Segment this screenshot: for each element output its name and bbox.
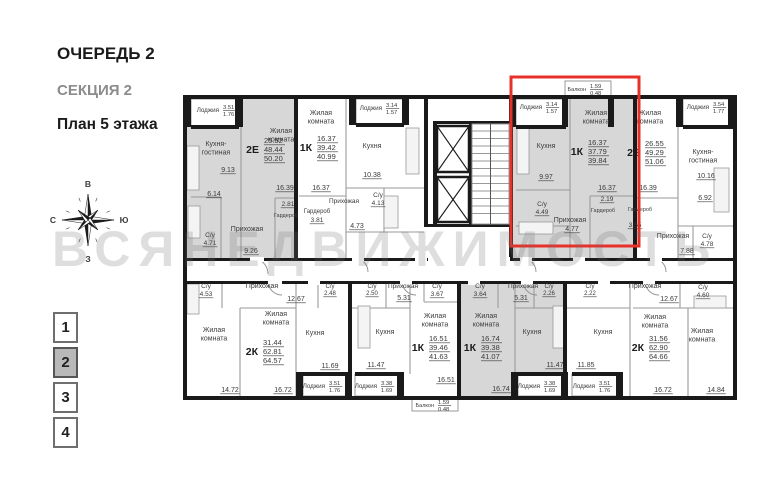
room-area: 7.88 — [680, 248, 694, 255]
apartment-area: 48.44 — [264, 145, 283, 154]
room-label: Гардероб — [591, 208, 615, 214]
fixture — [517, 128, 529, 174]
apartment-area: 62.90 — [649, 343, 668, 352]
room-area: 4.53 — [200, 291, 213, 298]
loggia-area: 1.77 — [713, 109, 724, 115]
apartment-area: 39.84 — [588, 156, 607, 165]
loggia-label: Лоджия — [520, 104, 542, 111]
apartment-area: 40.99 — [317, 152, 336, 161]
room-area: 2.19 — [601, 196, 614, 203]
apartment-type: 1К — [464, 342, 477, 354]
wall — [349, 95, 356, 125]
wall — [356, 123, 404, 127]
room-area: 5.31 — [397, 295, 411, 302]
loggia-area: 1.76 — [329, 388, 340, 394]
door-opening — [520, 257, 532, 262]
floor-selector-4[interactable]: 4 — [53, 417, 78, 448]
loggia-label: Балкон — [568, 87, 586, 93]
wall — [397, 372, 404, 398]
loggia-label: Лоджия — [197, 107, 219, 114]
room-label: Прихожая — [554, 217, 587, 224]
room-area: 16.74 — [492, 386, 510, 393]
room-area: 14.84 — [707, 387, 725, 394]
fixture — [187, 146, 199, 190]
wall — [572, 372, 618, 376]
room-label: Прихожая — [629, 283, 662, 290]
room-area: 4.71 — [204, 240, 217, 247]
apartment-area: 41.63 — [429, 352, 448, 361]
wall — [728, 95, 737, 127]
wall — [191, 125, 239, 129]
room-area: 11.47 — [547, 362, 564, 369]
room-area: 16.37 — [312, 185, 330, 192]
room-area: 11.47 — [368, 362, 385, 369]
room-label: Жилаякомната — [642, 314, 669, 330]
apartment-area: 16.74 — [481, 334, 500, 343]
room-area: 16.39 — [276, 185, 294, 192]
room-area: 16.37 — [598, 185, 616, 192]
room-area: 14.72 — [221, 387, 239, 394]
room-label: Прихожая — [231, 226, 264, 233]
wall — [683, 125, 733, 129]
apartment-area: 37.79 — [588, 147, 607, 156]
apartment-area: 26.55 — [645, 139, 664, 148]
room-area: 4.73 — [350, 223, 364, 230]
room-label: Гардероб — [274, 213, 298, 219]
loggia-area: 3.54 — [713, 102, 725, 108]
loggia-label: Лоджия — [303, 383, 325, 390]
room-label: С/у — [373, 192, 384, 199]
room-area: 2.48 — [324, 291, 336, 297]
room-area: 4.77 — [565, 226, 579, 233]
apartment-area: 49.29 — [645, 148, 664, 157]
loggia-area: 1.57 — [546, 109, 557, 115]
door-opening — [352, 257, 364, 262]
room-area: 6.14 — [207, 191, 221, 198]
loggia-area: 3.51 — [599, 381, 610, 387]
room-area: 9.97 — [539, 174, 553, 181]
room-area: 16.72 — [654, 387, 672, 394]
apartment-area: 25.52 — [264, 136, 283, 145]
room-label: С/у — [432, 283, 443, 290]
apartment-type: 1К — [300, 142, 313, 154]
room-area: 2.81 — [282, 201, 295, 208]
loggia-area: 3.14 — [546, 102, 558, 108]
apartment-type: 2Е — [246, 144, 259, 156]
apartment-area: 16.37 — [317, 134, 336, 143]
apartment-type: 1К — [571, 146, 584, 158]
room-label: Прихожая — [657, 233, 690, 240]
room-area: 11.85 — [578, 362, 595, 369]
wall — [616, 372, 623, 398]
room-label: С/у — [205, 232, 216, 239]
wall — [402, 95, 409, 125]
room-label: Кухня — [537, 143, 556, 150]
fixture — [187, 284, 199, 314]
room-label: Прихожая — [388, 283, 419, 290]
loggia-area: 1.69 — [381, 388, 392, 394]
wall — [424, 99, 428, 227]
room-area: 2.50 — [366, 291, 378, 297]
room-label: Жилаякомната — [689, 328, 716, 344]
room-area: 6.92 — [698, 195, 712, 202]
wall — [518, 372, 563, 376]
room-area: 3.81 — [311, 217, 324, 224]
room-label: Кухня-гостиная — [202, 141, 231, 157]
apartment-area: 64.66 — [649, 352, 668, 361]
floor-plan: Кухня-гостиная9.136.14Жилаякомната16.392… — [0, 0, 784, 500]
room-area: 4.49 — [536, 209, 549, 216]
loggia-area: 3.51 — [223, 105, 234, 111]
loggia-area: 1.57 — [386, 110, 397, 116]
fixture — [714, 168, 729, 212]
room-label: С/у — [698, 284, 709, 291]
wall — [183, 95, 187, 400]
room-area: 16.51 — [437, 377, 455, 384]
room-label: С/у — [545, 284, 554, 290]
loggia-label: Лоджия — [518, 383, 540, 390]
room-area: 3.64 — [474, 291, 487, 298]
fixture — [406, 128, 419, 174]
loggia-area: 1.59 — [438, 400, 449, 406]
door-opening — [573, 257, 585, 262]
room-label: Кухня — [523, 329, 542, 336]
room-label: Прихожая — [508, 283, 539, 290]
room-area: 11.69 — [322, 363, 339, 370]
room-label: С/у — [326, 284, 335, 290]
apartment-area: 31.44 — [263, 338, 282, 347]
apartment-area: 64.57 — [263, 356, 282, 365]
apartment-area: 39.42 — [317, 143, 336, 152]
door-opening — [250, 257, 264, 262]
room-label: Жилаякомната — [473, 313, 500, 329]
apartment-area: 16.37 — [588, 138, 607, 147]
wall — [355, 372, 399, 376]
room-area: 10.16 — [697, 173, 715, 180]
loggia-area: 3.51 — [329, 381, 340, 387]
floor-selector: 1 2 3 4 — [53, 312, 78, 452]
loggia-area: 0.48 — [590, 91, 601, 97]
loggia-label: Лоджия — [573, 383, 595, 390]
loggia-label: Лоджия — [687, 104, 709, 111]
fixture — [188, 206, 200, 238]
floor-selector-3[interactable]: 3 — [53, 382, 78, 413]
wall — [562, 95, 568, 127]
room-label: Жилаякомната — [637, 110, 664, 126]
apartment-area: 50.20 — [264, 154, 283, 163]
loggia-area: 3.38 — [381, 381, 392, 387]
room-label: С/у — [586, 284, 595, 290]
loggia-area: 1.59 — [590, 84, 601, 90]
fixture — [358, 306, 370, 348]
room-label: Жилаякомната — [263, 311, 290, 327]
loggia-area: 3.14 — [386, 103, 398, 109]
door-opening — [415, 257, 427, 262]
loggia-area: 1.69 — [544, 388, 555, 394]
door-opening — [598, 280, 610, 285]
loggia-label: Лоджия — [360, 105, 382, 112]
room-area: 4.78 — [701, 241, 714, 248]
loggia-area: 1.76 — [599, 388, 610, 394]
apartment-area: 16.51 — [429, 334, 448, 343]
floor-selector-2[interactable]: 2 — [53, 347, 78, 378]
door-opening — [308, 280, 320, 285]
room-label: Кухня — [376, 329, 395, 336]
apartment-area: 41.07 — [481, 352, 500, 361]
fixture — [384, 196, 398, 228]
page: ОЧЕРЕДЬ 2 СЕКЦИЯ 2 План 5 этажа В Ю З С … — [0, 0, 784, 500]
room-area: 2.26 — [543, 291, 555, 297]
apartment-area: 62.81 — [263, 347, 282, 356]
room-area: 9.26 — [244, 248, 258, 255]
room-area: 2.22 — [584, 291, 596, 297]
apartment-area: 39.46 — [429, 343, 448, 352]
room-label: С/у — [368, 284, 377, 290]
room-area: 9.13 — [221, 167, 235, 174]
room-area: 10.38 — [363, 172, 381, 179]
apartment-type: 2К — [246, 346, 259, 358]
room-label: Жилаякомната — [422, 313, 449, 329]
door-opening — [428, 257, 510, 262]
loggia-label: Балкон — [416, 403, 434, 409]
wall — [516, 125, 566, 129]
floor-selector-1[interactable]: 1 — [53, 312, 78, 343]
apartment-area: 39.38 — [481, 343, 500, 352]
room-label: Прихожая — [246, 283, 279, 290]
wall — [561, 372, 568, 398]
wall — [235, 95, 243, 127]
room-label: Жилаякомната — [308, 110, 335, 126]
room-label: Жилаякомната — [583, 110, 610, 126]
wall — [457, 284, 461, 396]
fixture — [519, 222, 553, 234]
apartment-area: 51.06 — [645, 157, 664, 166]
wall — [183, 95, 737, 99]
room-label: С/у — [201, 283, 212, 290]
wall — [183, 95, 191, 127]
apartment-type: 1К — [412, 342, 425, 354]
apartment-type: 2К — [632, 342, 645, 354]
room-area: 12.67 — [660, 296, 678, 303]
room-label: Кухня — [306, 330, 325, 337]
room-label: Гардероб — [304, 209, 331, 215]
loggia-area: 1.76 — [223, 112, 234, 118]
wall — [733, 95, 737, 400]
room-label: Кухня — [594, 329, 613, 336]
room-label: Жилаякомната — [201, 327, 228, 343]
loggia-area: 3.38 — [544, 381, 555, 387]
room-area: 5.31 — [514, 295, 528, 302]
room-area: 3.67 — [431, 291, 444, 298]
room-label: С/у — [475, 283, 486, 290]
apartment-area: 31.56 — [649, 334, 668, 343]
room-area: 12.67 — [287, 296, 305, 303]
door-opening — [650, 257, 662, 262]
room-label: Прихожая — [329, 198, 360, 205]
room-area: 16.72 — [274, 387, 292, 394]
room-area: 4.13 — [372, 200, 385, 207]
loggia-area: 0.48 — [438, 407, 449, 413]
wall — [183, 396, 737, 400]
wall — [294, 99, 298, 258]
room-label: С/у — [537, 201, 548, 208]
room-label: С/у — [702, 233, 713, 240]
room-area: 16.39 — [639, 185, 657, 192]
room-label: Кухня — [363, 143, 382, 150]
loggia-label: Лоджия — [355, 383, 377, 390]
room-label: Кухня-гостиная — [689, 149, 718, 165]
room-area: 4.60 — [697, 292, 710, 299]
wall — [345, 372, 352, 398]
wall — [676, 95, 683, 127]
wall — [303, 372, 347, 376]
